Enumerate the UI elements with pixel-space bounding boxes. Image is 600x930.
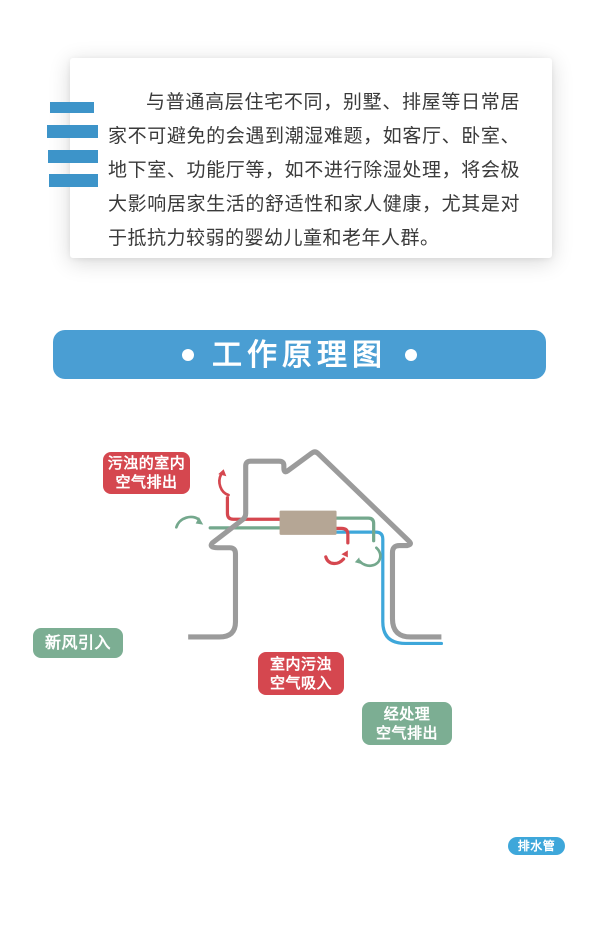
banner-title: 工作原理图 xyxy=(212,339,387,371)
label-treated-out: 经处理 空气排出 xyxy=(362,702,452,745)
bullet-dot-icon xyxy=(405,349,417,361)
label-indoor-intake: 室内污浊 空气吸入 xyxy=(258,652,344,695)
intro-card: 与普通高层住宅不同，别墅、排屋等日常居家不可避免的会遇到潮湿难题，如客厅、卧室、… xyxy=(70,58,552,258)
main-unit-label: 主 机 xyxy=(262,580,368,625)
page: 与普通高层住宅不同，别墅、排屋等日常居家不可避免的会遇到潮湿难题，如客厅、卧室、… xyxy=(0,0,600,930)
exhaust-duct-line-left xyxy=(227,498,279,520)
label-exhaust-out: 污浊的室内 空气排出 xyxy=(103,452,190,494)
exhaust-up-arrow-icon xyxy=(218,469,228,495)
decor-bar-icon xyxy=(48,150,98,163)
treated-out-arrow-icon xyxy=(355,548,380,566)
principle-diagram: 主 机 污浊的室内 空气排出 新风引入 室内污浊 空气吸入 经处理 空气排出 排… xyxy=(0,430,600,930)
section-banner: 工作原理图 xyxy=(53,330,546,379)
decor-bar-icon xyxy=(50,102,94,113)
bullet-dot-icon xyxy=(182,349,194,361)
main-unit-box xyxy=(280,511,337,535)
indoor-intake-arrow-icon xyxy=(326,550,348,563)
label-drain-pipe: 排水管 xyxy=(508,837,565,855)
decor-bar-icon xyxy=(47,125,98,138)
label-fresh-air-in: 新风引入 xyxy=(33,628,123,658)
fresh-air-arrow-icon xyxy=(176,517,203,527)
decor-bar-icon xyxy=(49,174,98,187)
intro-paragraph: 与普通高层住宅不同，别墅、排屋等日常居家不可避免的会遇到潮湿难题，如客厅、卧室、… xyxy=(70,58,552,256)
